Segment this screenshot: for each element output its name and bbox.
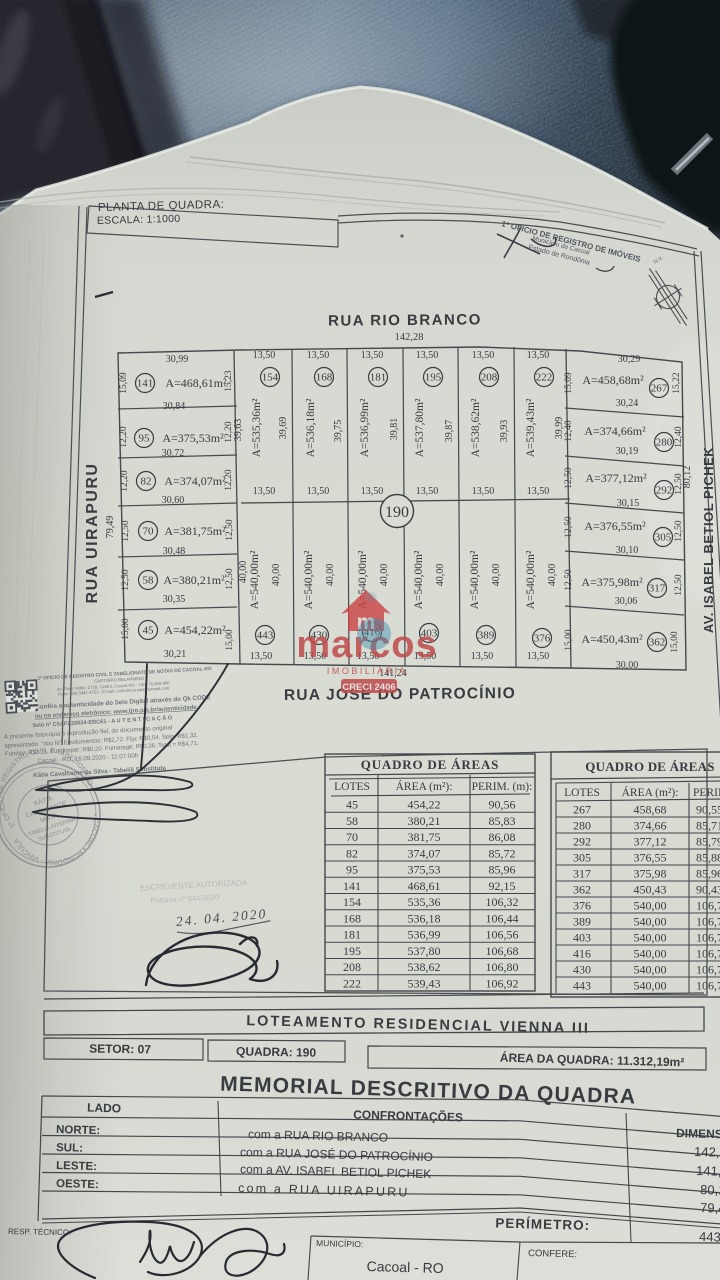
svg-text:12,20: 12,20 <box>224 469 234 491</box>
svg-text:RESP. TÉCNICO:: RESP. TÉCNICO: <box>8 1227 71 1237</box>
svg-text:222: 222 <box>343 976 361 990</box>
svg-text:292: 292 <box>656 485 673 497</box>
svg-text:106,75: 106,75 <box>696 914 720 928</box>
svg-text:458,68: 458,68 <box>634 802 667 816</box>
svg-text:15,22: 15,22 <box>672 372 682 394</box>
svg-text:A=450,43m²: A=450,43m² <box>581 632 643 646</box>
svg-text:154: 154 <box>343 895 361 909</box>
svg-text:222: 222 <box>536 372 553 384</box>
svg-text:A=540,00m²: A=540,00m² <box>303 550 315 609</box>
svg-text:70: 70 <box>346 830 358 844</box>
svg-text:195: 195 <box>343 944 361 958</box>
svg-text:30,19: 30,19 <box>616 446 639 457</box>
svg-text:13,50: 13,50 <box>527 350 550 361</box>
svg-text:12,50: 12,50 <box>121 520 131 542</box>
svg-text:540,00: 540,00 <box>634 898 667 912</box>
svg-text:539,43: 539,43 <box>408 976 441 990</box>
svg-text:430: 430 <box>573 962 591 976</box>
svg-text:QUADRO DE ÁREAS: QUADRO DE ÁREAS <box>361 757 499 772</box>
svg-text:40,00: 40,00 <box>379 564 390 587</box>
svg-text:15,00: 15,00 <box>225 629 235 651</box>
svg-text:12,50: 12,50 <box>225 519 235 541</box>
svg-text:CONFRONTAÇÕES: CONFRONTAÇÕES <box>353 1107 463 1125</box>
svg-text:95: 95 <box>139 433 151 445</box>
svg-text:538,62: 538,62 <box>408 960 441 974</box>
svg-text:A=458,68m²: A=458,68m² <box>582 373 644 387</box>
svg-text:70: 70 <box>143 526 155 538</box>
svg-text:QUADRA: 190: QUADRA: 190 <box>236 1044 317 1059</box>
svg-text:PERIM. (m):: PERIM. (m): <box>693 787 720 799</box>
svg-text:85,79: 85,79 <box>696 834 720 848</box>
svg-text:85,96: 85,96 <box>696 866 720 880</box>
svg-text:468,61: 468,61 <box>408 879 441 893</box>
svg-text:MUNICÍPIO:: MUNICÍPIO: <box>316 1238 363 1249</box>
svg-text:30,10: 30,10 <box>616 545 639 556</box>
svg-text:168: 168 <box>343 911 361 925</box>
svg-text:540,00: 540,00 <box>634 946 667 960</box>
svg-text:12,50: 12,50 <box>564 467 574 489</box>
svg-text:85,88: 85,88 <box>696 850 720 864</box>
svg-text:85,71: 85,71 <box>696 818 720 832</box>
svg-text:40,00: 40,00 <box>435 564 446 587</box>
svg-text:RUA UIRAPURU: RUA UIRAPURU <box>84 463 101 604</box>
svg-text:208: 208 <box>481 372 498 384</box>
svg-text:12,20: 12,20 <box>120 470 130 492</box>
svg-text:362: 362 <box>649 637 666 649</box>
svg-text:58: 58 <box>143 575 155 587</box>
svg-text:30,00: 30,00 <box>616 660 639 671</box>
svg-text:377,12: 377,12 <box>634 834 667 848</box>
svg-text:381,75: 381,75 <box>408 830 441 844</box>
svg-text:13,50: 13,50 <box>361 350 384 361</box>
svg-text:30,60: 30,60 <box>162 495 185 506</box>
svg-text:A=375,98m²: A=375,98m² <box>581 575 643 589</box>
svg-text:PERIM. (m):: PERIM. (m): <box>472 781 533 793</box>
svg-text:OESTE:: OESTE: <box>56 1178 99 1191</box>
svg-text:15,09: 15,09 <box>119 372 129 394</box>
svg-text:LESTE:: LESTE: <box>56 1160 97 1173</box>
svg-text:AV. ISABEL BETIOL PICHEK: AV. ISABEL BETIOL PICHEK <box>701 447 716 633</box>
svg-text:15,00: 15,00 <box>121 618 131 640</box>
svg-text:443: 443 <box>573 978 591 992</box>
svg-text:13,50: 13,50 <box>307 486 330 497</box>
svg-text:A=376,55m²: A=376,55m² <box>584 519 646 533</box>
svg-text:540,00: 540,00 <box>634 914 667 928</box>
svg-text:80,12: 80,12 <box>682 466 693 489</box>
svg-text:A=540,00m²: A=540,00m² <box>469 550 481 609</box>
svg-text:DIMENSÕES (m):: DIMENSÕES (m): <box>676 1125 720 1143</box>
svg-text:141,24: 141,24 <box>696 1163 720 1179</box>
svg-text:39,69: 39,69 <box>278 417 289 440</box>
svg-text:374,07: 374,07 <box>408 846 441 860</box>
svg-text:374,66: 374,66 <box>634 818 667 832</box>
svg-text:90,56: 90,56 <box>489 798 516 812</box>
svg-text:375,98: 375,98 <box>634 866 667 880</box>
svg-text:CONFERE:: CONFERE: <box>528 1248 577 1260</box>
svg-text:40,00: 40,00 <box>325 564 336 587</box>
svg-text:540,00: 540,00 <box>634 930 667 944</box>
svg-text:13,50: 13,50 <box>416 350 439 361</box>
svg-text:106,56: 106,56 <box>486 928 519 942</box>
svg-text:RUA RIO BRANCO: RUA RIO BRANCO <box>328 311 482 329</box>
svg-text:SETOR: 07: SETOR: 07 <box>89 1041 151 1056</box>
svg-text:39,87: 39,87 <box>444 420 455 443</box>
svg-text:267: 267 <box>573 802 591 816</box>
svg-text:30,99: 30,99 <box>166 354 189 365</box>
svg-text:181: 181 <box>370 372 387 384</box>
svg-text:A=540,00m²: A=540,00m² <box>525 550 537 609</box>
svg-text:13,50: 13,50 <box>253 350 276 361</box>
svg-text:190: 190 <box>385 504 409 521</box>
svg-text:13,50: 13,50 <box>361 486 384 497</box>
svg-text:305: 305 <box>573 850 591 864</box>
svg-text:ÁREA (m²):: ÁREA (m²): <box>396 779 453 793</box>
svg-text:317: 317 <box>573 866 591 880</box>
svg-text:85,72: 85,72 <box>489 846 516 860</box>
svg-text:A=381,75m²: A=381,75m² <box>164 524 226 538</box>
svg-text:CRECI 2406: CRECI 2406 <box>342 682 395 693</box>
svg-text:A=540,00m²: A=540,00m² <box>413 550 425 609</box>
svg-text:82: 82 <box>346 846 358 860</box>
svg-text:30,84: 30,84 <box>163 401 186 412</box>
svg-text:90,43: 90,43 <box>696 882 720 896</box>
svg-text:454,22: 454,22 <box>408 798 441 812</box>
svg-text:79,49: 79,49 <box>700 1200 720 1216</box>
svg-text:106,75: 106,75 <box>696 978 720 992</box>
svg-text:12,50: 12,50 <box>564 516 574 538</box>
svg-text:106,75: 106,75 <box>696 946 720 960</box>
svg-text:30,06: 30,06 <box>615 596 638 607</box>
svg-text:PERÍMETRO:: PERÍMETRO: <box>495 1216 590 1233</box>
svg-text:RUA JOSÉ DO PATROCÍNIO: RUA JOSÉ DO PATROCÍNIO <box>284 685 516 704</box>
svg-text:45: 45 <box>346 798 358 812</box>
svg-text:I M O B I L I Á R I A: I M O B I L I Á R I A <box>327 666 405 676</box>
svg-text:12,20: 12,20 <box>119 426 129 448</box>
svg-text:12,40: 12,40 <box>564 420 574 442</box>
svg-text:30,24: 30,24 <box>616 398 639 409</box>
svg-text:142,28: 142,28 <box>694 1144 720 1160</box>
svg-text:LOTES: LOTES <box>564 787 600 799</box>
svg-text:NORTE:: NORTE: <box>56 1124 100 1137</box>
svg-text:13,50: 13,50 <box>527 651 550 662</box>
svg-text:45: 45 <box>143 625 155 637</box>
svg-text:13,50: 13,50 <box>250 651 273 662</box>
svg-text:A=536,18m²: A=536,18m² <box>305 398 317 457</box>
svg-text:13,50: 13,50 <box>472 350 495 361</box>
svg-text:86,08: 86,08 <box>489 830 516 844</box>
svg-text:80,12: 80,12 <box>700 1182 720 1198</box>
svg-text:39,63: 39,63 <box>233 419 244 442</box>
svg-text:13,50: 13,50 <box>527 486 550 497</box>
svg-text:30,72: 30,72 <box>162 448 185 459</box>
svg-text:305: 305 <box>655 532 672 544</box>
svg-text:12,50: 12,50 <box>674 574 684 596</box>
svg-text:168: 168 <box>316 372 333 384</box>
svg-text:A=537,80m²: A=537,80m² <box>414 398 426 457</box>
svg-text:ÁREA (m²):: ÁREA (m²): <box>622 785 679 799</box>
svg-text:85,83: 85,83 <box>489 814 516 828</box>
svg-text:40,00: 40,00 <box>491 564 502 587</box>
svg-text:A=539,43m²: A=539,43m² <box>525 398 537 457</box>
svg-text:85,96: 85,96 <box>489 863 516 877</box>
svg-text:389: 389 <box>573 914 591 928</box>
svg-text:A=375,53m²: A=375,53m² <box>162 431 224 445</box>
svg-text:SUL:: SUL: <box>56 1142 83 1155</box>
svg-text:443: 443 <box>257 630 274 642</box>
svg-text:A=468,61m²: A=468,61m² <box>165 376 227 390</box>
svg-text:15,00: 15,00 <box>670 631 680 653</box>
svg-text:15,23: 15,23 <box>224 370 234 392</box>
svg-text:141: 141 <box>137 378 154 390</box>
svg-text:106,32: 106,32 <box>486 895 519 909</box>
svg-text:376,55: 376,55 <box>634 850 667 864</box>
svg-text:40,00: 40,00 <box>238 561 249 584</box>
svg-text:ESCALA: 1:1000: ESCALA: 1:1000 <box>97 213 181 227</box>
svg-text:30,35: 30,35 <box>163 594 186 605</box>
svg-text:106,75: 106,75 <box>696 898 720 912</box>
svg-text:195: 195 <box>425 372 442 384</box>
svg-text:12,50: 12,50 <box>121 569 131 591</box>
svg-text:95: 95 <box>346 863 358 877</box>
svg-text:12,50: 12,50 <box>674 520 684 542</box>
svg-text:540,00: 540,00 <box>634 978 667 992</box>
svg-text:15,00: 15,00 <box>564 629 574 651</box>
svg-text:13,50: 13,50 <box>307 350 330 361</box>
svg-text:30,48: 30,48 <box>163 546 186 557</box>
svg-text:389: 389 <box>478 630 495 642</box>
svg-text:208: 208 <box>343 960 361 974</box>
svg-text:Cacoal - RO: Cacoal - RO <box>366 1258 444 1276</box>
svg-text:A=374,66m²: A=374,66m² <box>584 424 646 438</box>
svg-text:30,29: 30,29 <box>618 354 641 365</box>
svg-text:106,92: 106,92 <box>486 976 519 990</box>
svg-text:141: 141 <box>343 879 361 893</box>
svg-text:154: 154 <box>262 372 279 384</box>
svg-text:416: 416 <box>573 946 591 960</box>
svg-text:13,50: 13,50 <box>253 486 276 497</box>
svg-text:106,68: 106,68 <box>486 944 519 958</box>
svg-text:106,75: 106,75 <box>696 930 720 944</box>
svg-text:79,49: 79,49 <box>105 516 116 539</box>
svg-text:540,00: 540,00 <box>634 962 667 976</box>
svg-text:106,75: 106,75 <box>696 962 720 976</box>
svg-text:537,80: 537,80 <box>408 944 441 958</box>
svg-text:13,50: 13,50 <box>472 486 495 497</box>
svg-text:30,15: 30,15 <box>617 498 640 509</box>
svg-text:536,99: 536,99 <box>408 928 441 942</box>
svg-text:A=380,21m²: A=380,21m² <box>163 573 225 587</box>
svg-text:450,43: 450,43 <box>634 882 667 896</box>
svg-text:535,36: 535,36 <box>408 895 441 909</box>
svg-text:375,53: 375,53 <box>408 863 441 877</box>
svg-text:376: 376 <box>573 898 591 912</box>
svg-text:A=454,22m²: A=454,22m² <box>164 623 226 637</box>
svg-text:267: 267 <box>651 383 668 395</box>
svg-text:181: 181 <box>343 928 361 942</box>
svg-text:106,80: 106,80 <box>486 960 519 974</box>
svg-text:39,81: 39,81 <box>389 418 400 441</box>
svg-text:13,50: 13,50 <box>416 486 439 497</box>
svg-text:A=540,00m²: A=540,00m² <box>249 550 261 609</box>
svg-text:LADO: LADO <box>87 1101 121 1116</box>
svg-text:A=538,62m²: A=538,62m² <box>470 398 482 457</box>
svg-text:90,55: 90,55 <box>696 802 720 816</box>
svg-text:A=377,12m²: A=377,12m² <box>585 471 647 485</box>
svg-text:40,00: 40,00 <box>271 564 282 587</box>
svg-text:380,21: 380,21 <box>408 814 441 828</box>
svg-text:12,40: 12,40 <box>674 426 684 448</box>
svg-text:30,21: 30,21 <box>164 649 187 660</box>
svg-text:A=535,36m²: A=535,36m² <box>251 398 263 457</box>
svg-text:40,00: 40,00 <box>547 564 558 587</box>
svg-text:403: 403 <box>573 930 591 944</box>
svg-text:58: 58 <box>346 814 358 828</box>
svg-text:15,09: 15,09 <box>564 372 574 394</box>
svg-text:39,93: 39,93 <box>499 420 510 443</box>
svg-text:362: 362 <box>573 882 591 896</box>
svg-text:A=536,99m²: A=536,99m² <box>359 398 371 457</box>
svg-text:280: 280 <box>656 437 673 449</box>
svg-text:82: 82 <box>141 476 152 488</box>
svg-text:106,44: 106,44 <box>486 911 519 925</box>
svg-text:12,50: 12,50 <box>564 569 574 591</box>
svg-text:280: 280 <box>573 818 591 832</box>
svg-text:12,50: 12,50 <box>225 568 235 590</box>
svg-text:92,15: 92,15 <box>489 879 516 893</box>
svg-text:LOTES: LOTES <box>334 781 370 793</box>
svg-text:536,18: 536,18 <box>408 911 441 925</box>
svg-text:39,75: 39,75 <box>333 420 344 443</box>
svg-text:142,28: 142,28 <box>395 332 424 343</box>
svg-text:376: 376 <box>534 633 551 645</box>
svg-text:292: 292 <box>573 834 591 848</box>
svg-text:A=374,07m²: A=374,07m² <box>164 474 226 488</box>
svg-text:317: 317 <box>649 583 666 595</box>
svg-text:QUADRO DE ÁREAS: QUADRO DE ÁREAS <box>585 759 714 774</box>
svg-text:13,50: 13,50 <box>471 651 494 662</box>
